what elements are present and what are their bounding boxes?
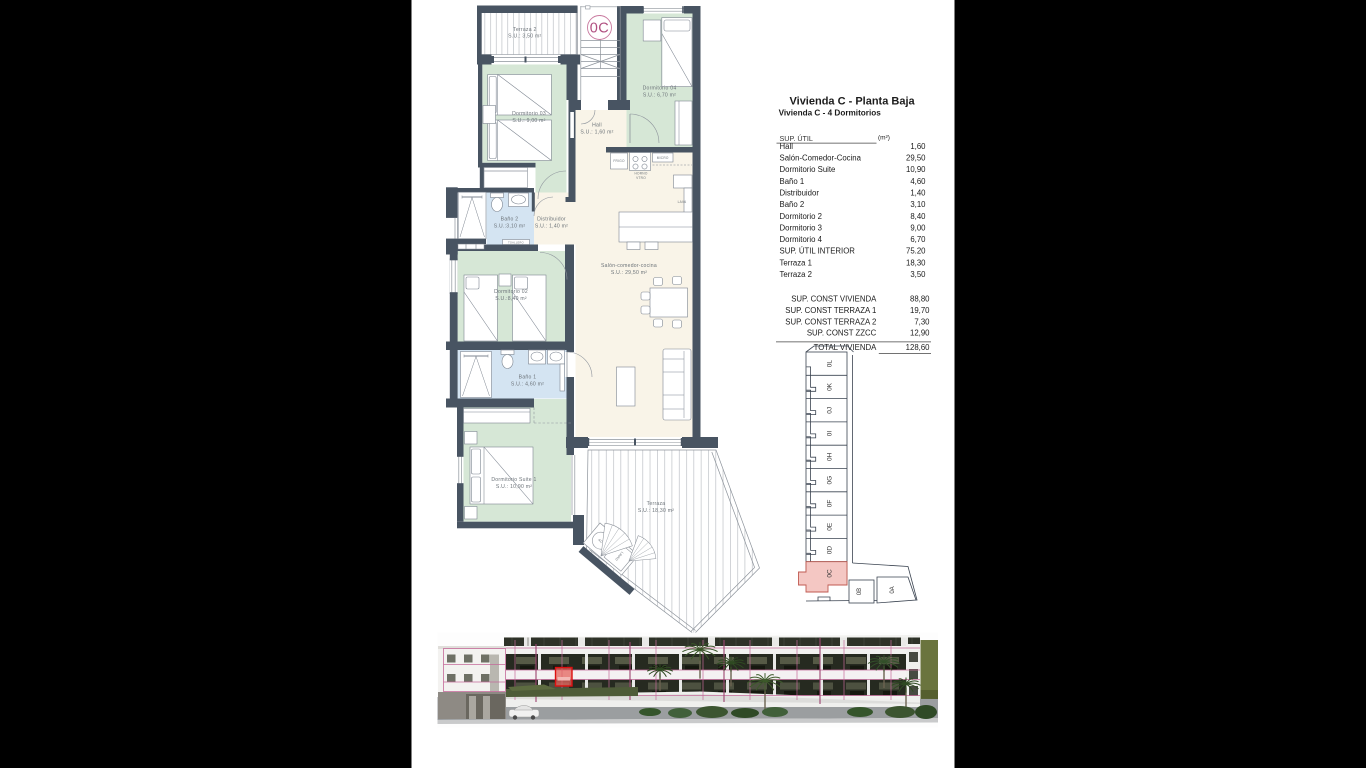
svg-text:Dormitorio 4: Dormitorio 4 bbox=[780, 235, 823, 244]
svg-text:S.U.: 1,40 m²: S.U.: 1,40 m² bbox=[535, 223, 568, 229]
svg-text:0C: 0C bbox=[827, 569, 834, 578]
svg-text:TOALLERO: TOALLERO bbox=[508, 240, 524, 244]
svg-text:S.U.: 29,50 m²: S.U.: 29,50 m² bbox=[611, 270, 647, 276]
svg-text:S.U.: 18,30 m²: S.U.: 18,30 m² bbox=[638, 508, 674, 514]
svg-text:0F: 0F bbox=[827, 500, 834, 508]
svg-text:1,60: 1,60 bbox=[910, 142, 926, 151]
svg-text:MICRO: MICRO bbox=[657, 156, 669, 160]
svg-text:Dormitorio 04: Dormitorio 04 bbox=[643, 86, 677, 92]
svg-text:75.20: 75.20 bbox=[906, 247, 926, 256]
svg-text:Distribuidor: Distribuidor bbox=[537, 217, 566, 223]
svg-text:6,70: 6,70 bbox=[910, 235, 926, 244]
svg-text:0L: 0L bbox=[827, 360, 834, 368]
svg-text:S.U.:8,40 m²: S.U.:8,40 m² bbox=[495, 296, 527, 302]
svg-text:SUP. CONST TERRAZA 2: SUP. CONST TERRAZA 2 bbox=[785, 317, 876, 326]
svg-text:S.U.: 9,00 m²: S.U.: 9,00 m² bbox=[512, 118, 545, 124]
svg-text:Baño 2: Baño 2 bbox=[501, 217, 519, 223]
svg-text:0A: 0A bbox=[890, 586, 896, 593]
svg-text:3,10: 3,10 bbox=[910, 200, 926, 209]
svg-text:Dormitorio 3: Dormitorio 3 bbox=[780, 223, 822, 232]
svg-text:Terraza 2: Terraza 2 bbox=[513, 27, 536, 33]
svg-text:0G: 0G bbox=[827, 476, 834, 485]
svg-text:Baño 2: Baño 2 bbox=[780, 200, 805, 209]
svg-text:Dormitorio Suite: Dormitorio Suite bbox=[780, 165, 836, 174]
svg-text:Salón-Comedor-Cocina: Salón-Comedor-Cocina bbox=[780, 153, 862, 162]
svg-text:29,50: 29,50 bbox=[906, 153, 926, 162]
svg-text:S.U.:3,10 m²: S.U.:3,10 m² bbox=[494, 223, 526, 229]
svg-text:SUP. CONST ZZCC: SUP. CONST ZZCC bbox=[807, 329, 877, 338]
svg-text:SUP. ÚTIL INTERIOR: SUP. ÚTIL INTERIOR bbox=[780, 247, 856, 256]
svg-text:S.U.: 10,90 m²: S.U.: 10,90 m² bbox=[496, 484, 532, 490]
svg-text:(m²): (m²) bbox=[878, 135, 890, 142]
svg-text:SUP. CONST VIVIENDA: SUP. CONST VIVIENDA bbox=[791, 295, 877, 304]
svg-text:S.U.: 6,70 m²: S.U.: 6,70 m² bbox=[643, 92, 676, 98]
svg-text:Baño 1: Baño 1 bbox=[519, 375, 537, 381]
svg-text:128,60: 128,60 bbox=[906, 343, 931, 352]
svg-text:3,50: 3,50 bbox=[910, 270, 926, 279]
svg-text:8,40: 8,40 bbox=[910, 212, 926, 221]
svg-text:4,60: 4,60 bbox=[910, 177, 926, 186]
svg-text:Terraza 1: Terraza 1 bbox=[780, 258, 813, 267]
svg-text:0J: 0J bbox=[827, 407, 834, 414]
svg-text:Dormitorio 02: Dormitorio 02 bbox=[494, 289, 528, 295]
svg-text:S.U.: 1,60 m²: S.U.: 1,60 m² bbox=[580, 129, 613, 135]
svg-text:0D: 0D bbox=[827, 546, 834, 555]
svg-text:0I: 0I bbox=[827, 431, 834, 437]
svg-text:0B: 0B bbox=[857, 588, 863, 595]
svg-text:HORNO: HORNO bbox=[634, 172, 647, 176]
svg-text:Terraza 2: Terraza 2 bbox=[780, 270, 813, 279]
svg-text:VTRO: VTRO bbox=[636, 176, 646, 180]
svg-text:0E: 0E bbox=[827, 522, 834, 531]
svg-text:Hall: Hall bbox=[592, 123, 602, 129]
svg-text:1,40: 1,40 bbox=[910, 188, 926, 197]
svg-text:18,30: 18,30 bbox=[906, 258, 926, 267]
svg-text:Distribuidor: Distribuidor bbox=[780, 188, 820, 197]
svg-text:0K: 0K bbox=[827, 382, 834, 391]
svg-text:Hall: Hall bbox=[780, 142, 794, 151]
svg-text:Terraza: Terraza bbox=[647, 501, 666, 507]
svg-text:Salón-comedor-cocina: Salón-comedor-cocina bbox=[601, 263, 657, 269]
svg-text:7,30: 7,30 bbox=[914, 317, 930, 326]
svg-text:Dormitorio Suite 1: Dormitorio Suite 1 bbox=[491, 477, 536, 483]
svg-text:S.U.: 3,50 m²: S.U.: 3,50 m² bbox=[508, 34, 541, 40]
svg-text:FRIGO: FRIGO bbox=[613, 159, 625, 163]
svg-text:Vivienda C - 4 Dormitorios: Vivienda C - 4 Dormitorios bbox=[779, 109, 882, 118]
svg-text:12,90: 12,90 bbox=[910, 329, 930, 338]
svg-text:Dormitorio 03: Dormitorio 03 bbox=[512, 111, 546, 117]
svg-text:9,00: 9,00 bbox=[910, 223, 926, 232]
svg-text:0H: 0H bbox=[827, 452, 834, 461]
svg-text:LAVA: LAVA bbox=[678, 200, 687, 204]
svg-text:0C: 0C bbox=[590, 21, 610, 37]
svg-text:Dormitorio 2: Dormitorio 2 bbox=[780, 212, 822, 221]
svg-text:10,90: 10,90 bbox=[906, 165, 926, 174]
svg-text:TOTAL VIVIENDA: TOTAL VIVIENDA bbox=[814, 343, 877, 352]
svg-text:SUP. CONST TERRAZA 1: SUP. CONST TERRAZA 1 bbox=[785, 306, 876, 315]
svg-text:Vivienda C - Planta Baja: Vivienda C - Planta Baja bbox=[790, 96, 916, 108]
svg-text:19,70: 19,70 bbox=[910, 306, 930, 315]
svg-text:S.U.: 4,60 m²: S.U.: 4,60 m² bbox=[511, 381, 544, 387]
svg-text:88,80: 88,80 bbox=[910, 295, 930, 304]
svg-text:Baño 1: Baño 1 bbox=[780, 177, 805, 186]
